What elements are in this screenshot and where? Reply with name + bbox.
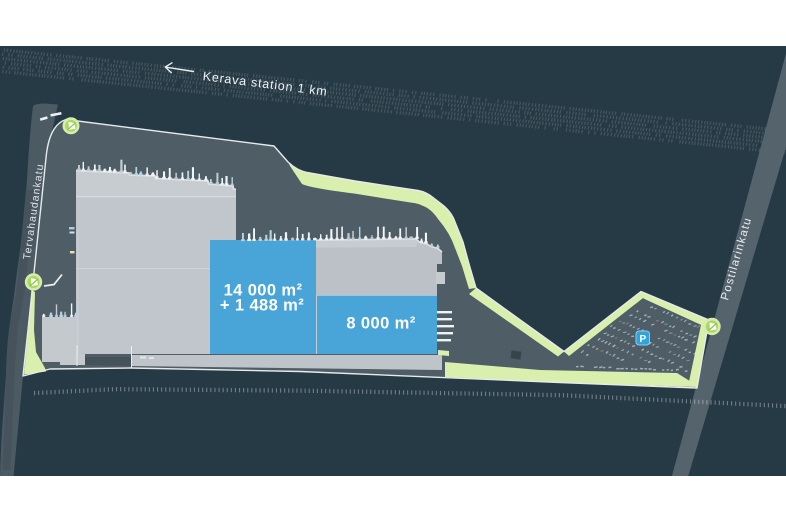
svg-text:8 000 m²: 8 000 m² (346, 315, 415, 333)
svg-text:P: P (639, 334, 646, 345)
svg-text:+ 1 488 m²: + 1 488 m² (220, 297, 304, 315)
